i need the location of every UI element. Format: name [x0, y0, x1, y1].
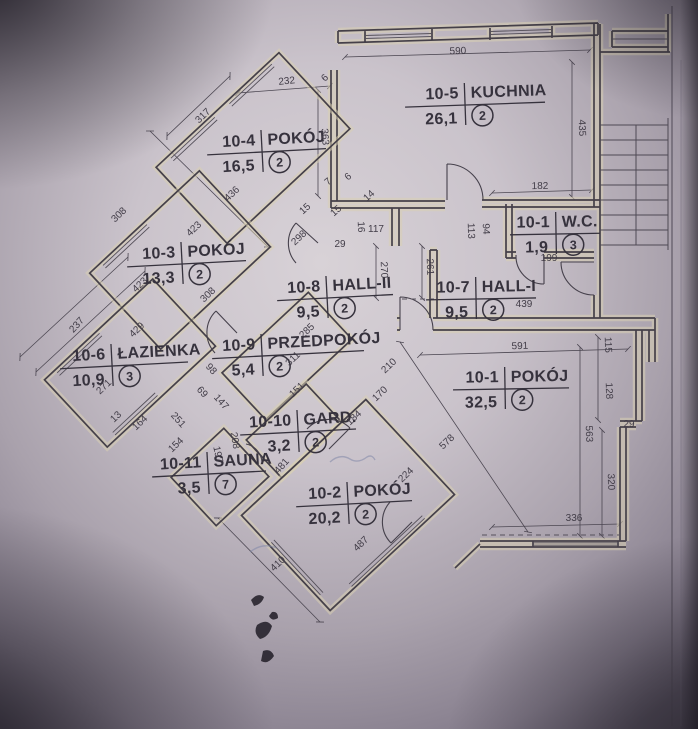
room-id: 10-6 [72, 346, 106, 365]
occupancy-number: 2 [479, 109, 486, 123]
dimension-label: 261 [424, 258, 436, 275]
dimension-label: 439 [516, 299, 533, 310]
occupancy-number: 2 [362, 507, 370, 521]
room-area: 9,5 [296, 303, 320, 321]
room-area: 16,5 [222, 157, 255, 176]
dimension-label: 16 [355, 221, 366, 233]
room-area: 20,2 [308, 509, 341, 528]
occupancy-number: 2 [276, 155, 284, 169]
room-id: 10-1 [465, 369, 499, 387]
room-area: 9,5 [445, 304, 468, 321]
room-id: 10-11 [160, 454, 202, 473]
room-id: 10-2 [308, 484, 342, 503]
room-id: 10-4 [222, 132, 256, 151]
dimension-label: 590 [449, 46, 466, 58]
occupancy-number: 3 [126, 369, 134, 383]
dimension-label: 363 [318, 128, 330, 146]
room-id: 10-3 [142, 244, 176, 263]
occupancy-number: 2 [276, 359, 284, 373]
room-name: KUCHNIA [470, 82, 547, 102]
room-id: 10-10 [249, 412, 292, 431]
dimension-label: 29 [623, 419, 635, 430]
floorplan-canvas: 10-5 KUCHNIA 26,1 2 10-4 POKÓJ 16,5 2 10… [0, 0, 698, 729]
room-id: 10-1 [516, 214, 550, 232]
occupancy-number: 2 [312, 435, 320, 449]
dimension-label: 336 [566, 513, 583, 524]
dimension-label: 591 [511, 341, 528, 353]
room-id: 10-8 [287, 278, 321, 297]
room-id: 10-9 [222, 336, 256, 355]
occupancy-number: 2 [490, 303, 497, 317]
room-id: 10-5 [425, 85, 459, 103]
occupancy-number: 7 [222, 477, 230, 491]
occupancy-number: 2 [519, 393, 526, 407]
room-area: 5,4 [231, 361, 255, 379]
occupancy-number: 2 [341, 301, 349, 315]
dimension-label: 232 [278, 75, 296, 88]
dimension-label: 113 [465, 223, 477, 240]
dimension-label: 29 [334, 239, 346, 250]
occupancy-number: 2 [196, 267, 204, 281]
dimension-label: 117 [368, 224, 384, 235]
room-name: POKÓJ [511, 366, 569, 386]
room-name: W.C. [562, 213, 598, 231]
dimension-label: 563 [583, 425, 595, 442]
dimension-label: 182 [532, 181, 549, 192]
floorplan-photo: 10-5 KUCHNIA 26,1 2 10-4 POKÓJ 16,5 2 10… [0, 0, 698, 729]
dimension-label: 94 [480, 223, 491, 235]
room-area: 26,1 [425, 110, 458, 128]
dimension-label: 199 [541, 253, 558, 264]
room-area: 3,5 [177, 479, 201, 497]
occupancy-number: 3 [570, 238, 577, 252]
room-name: HALL-I [482, 278, 537, 296]
dimension-label: 128 [603, 382, 615, 399]
room-area: 32,5 [465, 394, 498, 412]
room-id: 10-7 [436, 279, 470, 297]
dimension-label: 270 [378, 261, 390, 278]
dimension-label: 435 [576, 119, 588, 136]
dimension-label: 320 [605, 473, 617, 490]
dimension-label: 115 [602, 337, 614, 354]
